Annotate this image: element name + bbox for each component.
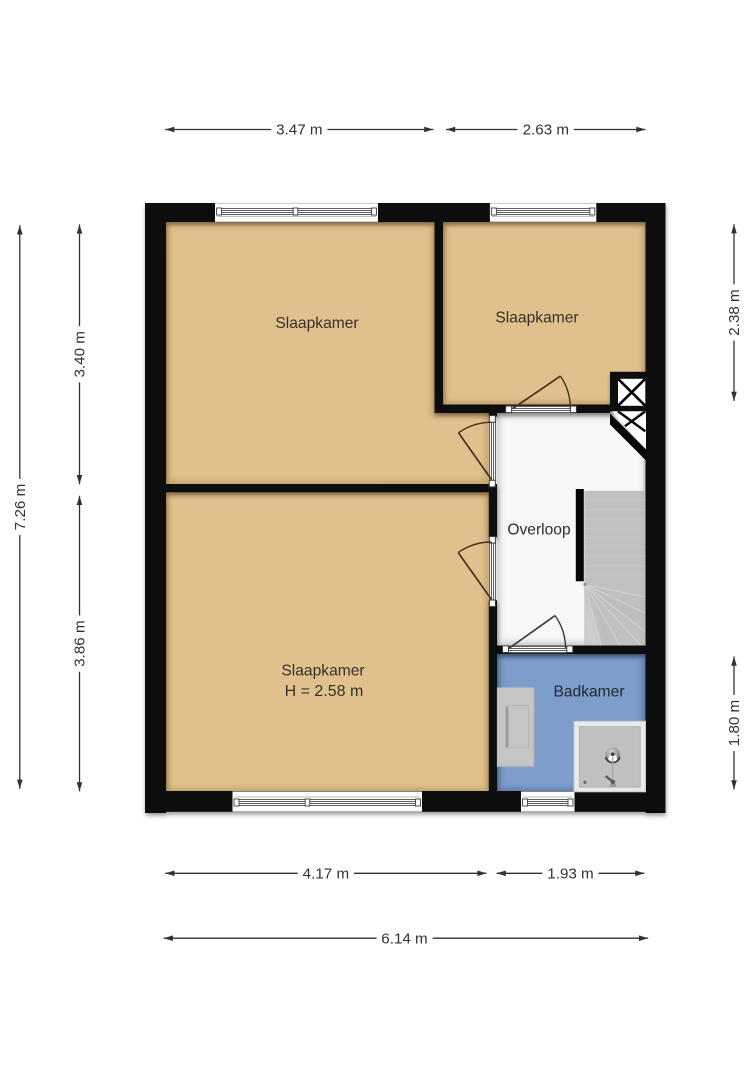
svg-text:4.17 m: 4.17 m xyxy=(303,866,349,883)
svg-text:6.14 m: 6.14 m xyxy=(381,930,427,947)
svg-text:1.93 m: 1.93 m xyxy=(547,866,593,883)
svg-text:Overloop: Overloop xyxy=(507,522,571,539)
svg-text:1.80 m: 1.80 m xyxy=(726,700,743,746)
svg-text:H = 2.58 m: H = 2.58 m xyxy=(285,683,364,700)
svg-text:3.47 m: 3.47 m xyxy=(276,122,322,139)
svg-text:2.63 m: 2.63 m xyxy=(523,122,569,139)
svg-text:Slaapkamer: Slaapkamer xyxy=(495,310,578,327)
svg-text:Slaapkamer: Slaapkamer xyxy=(275,315,358,332)
svg-text:Badkamer: Badkamer xyxy=(553,684,624,701)
svg-text:3.40 m: 3.40 m xyxy=(72,331,89,377)
svg-text:Slaapkamer: Slaapkamer xyxy=(281,663,364,680)
svg-text:3.86 m: 3.86 m xyxy=(72,620,89,666)
svg-text:7.26 m: 7.26 m xyxy=(12,484,29,530)
svg-text:2.38 m: 2.38 m xyxy=(726,289,743,335)
